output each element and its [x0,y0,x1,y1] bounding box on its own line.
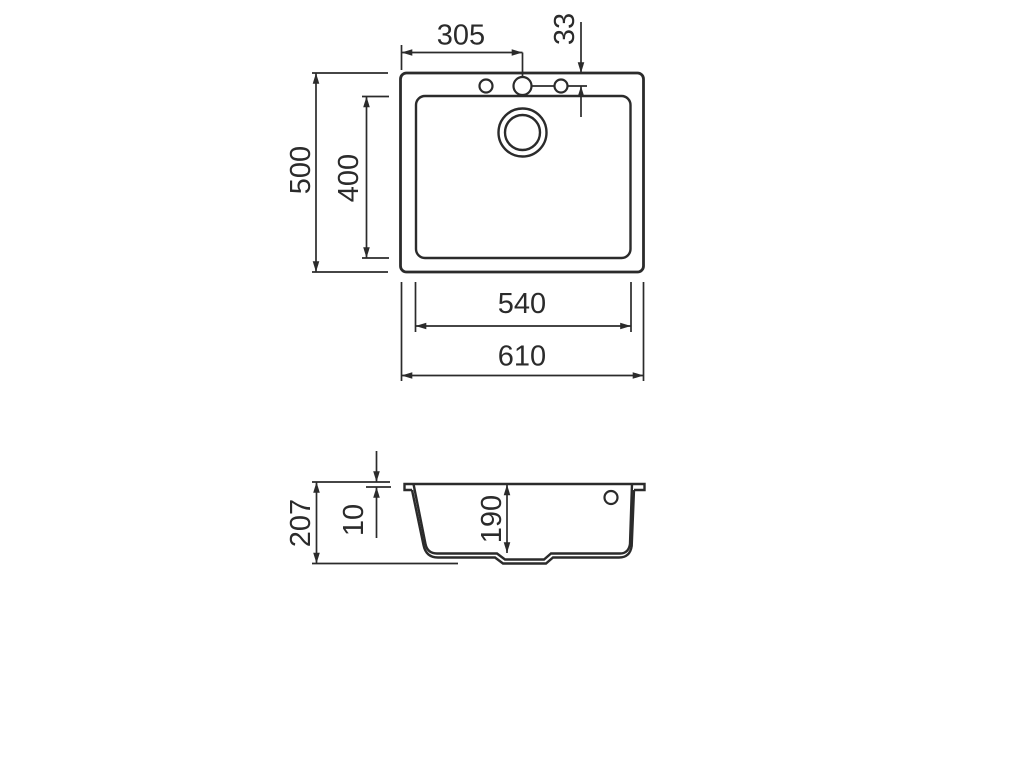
section-inner-profile [414,484,633,560]
drawing-page: 305 33 500 400 540 [0,0,1024,768]
dim-bowl-width: 540 [416,282,632,332]
top-view [401,53,644,273]
dim-label-207: 207 [285,499,317,547]
dim-tap-offset-left: 305 [402,20,523,71]
section-rim-top [405,484,645,490]
dim-label-305: 305 [437,20,485,52]
dim-label-400: 400 [333,154,365,202]
dim-label-540: 540 [498,288,546,320]
dim-label-33: 33 [549,13,581,45]
tap-hole-right [555,80,568,93]
dim-label-500: 500 [285,146,317,194]
dim-label-190: 190 [476,495,508,543]
dim-bowl-depth-plan: 400 [333,97,389,259]
overflow-hole [605,491,618,504]
dim-label-610: 610 [498,341,546,373]
dim-rim-thickness: 10 [338,451,391,538]
dim-label-10: 10 [338,504,370,536]
tap-hole-center [514,77,532,95]
sink-technical-drawing: 305 33 500 400 540 [0,0,1024,768]
drain-ring-inner [505,115,540,150]
tap-hole-left [480,80,493,93]
dim-bowl-depth-section: 190 [476,485,508,554]
